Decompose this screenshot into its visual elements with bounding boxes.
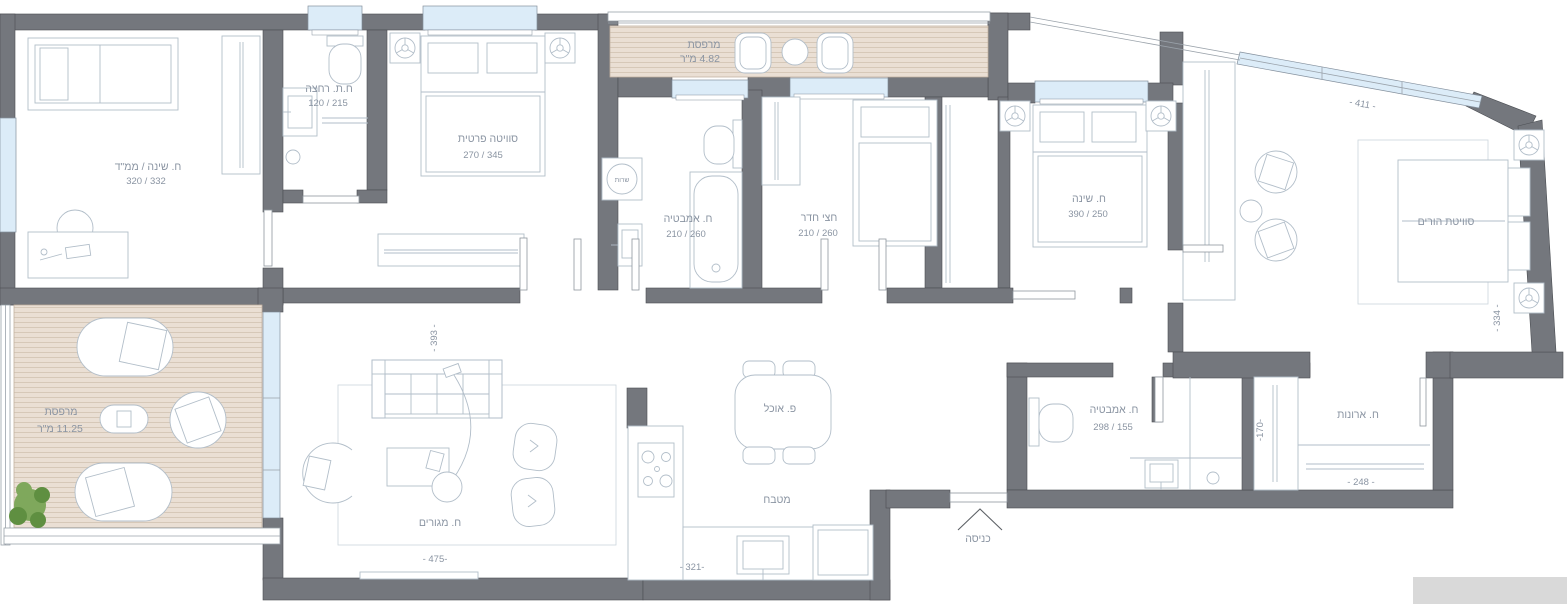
adjacent-structure [1413,577,1567,604]
balcony-table [782,39,808,65]
dresser [378,234,524,266]
room-label: ח. ארונות [1337,409,1379,421]
room-bathroom-bottom: ח. אמבטיה 298 / 155 [1029,377,1242,490]
room-bedroom: ח. שינה 390 / 250 [1000,101,1176,299]
shaft-label: שרות [615,177,630,184]
door-leaf [1155,377,1163,422]
door-leaf [1420,378,1426,426]
glass-railing [608,12,990,21]
dim-depth: -170- [1255,419,1266,441]
door-leaf [264,210,272,266]
room-label: ח.ת. רחצה [305,83,353,95]
room-area: 11.25 מ"ר [37,423,83,435]
room-dims: 210 / 260 [666,229,706,240]
lounge-sofa [75,463,172,521]
dim-width: - 248 - [1347,477,1374,488]
single-bed [28,38,178,110]
room-balcony-top: מרפסת 4.82 מ"ר [608,12,990,77]
dim-depth: - 334 - [1492,304,1503,331]
door-jamb [879,239,886,290]
room-half-room: חצי חדר 210 / 260 [762,97,937,290]
door-jamb [632,239,639,290]
room-label: סוויטה פרטית [458,133,518,145]
room-dims: 390 / 250 [1068,209,1108,220]
toilet-icon [704,120,742,168]
room-dims: 120 / 215 [308,98,348,109]
service-shaft: שרות [602,158,642,200]
service-duct [946,105,950,283]
coffee-table [100,405,148,433]
entrance: כניסה [950,493,1007,545]
room-guest-bath: ח.ת. רחצה 120 / 215 [283,36,368,203]
door-jamb [821,239,828,290]
threshold [950,493,1007,502]
room-private-suite: סוויטה פרטית 270 / 345 [378,33,575,290]
sink-vanity [1145,460,1178,490]
nightstand-speaker-icon [390,33,420,63]
parapet-line [1030,17,1240,55]
sink [737,536,789,574]
room-area: 4.82 מ"ר [680,53,720,65]
floor-drain [1207,472,1219,484]
door-jamb [574,239,581,290]
room-living: ח. מגורים - 475- - 393 - [303,324,616,579]
chair [783,447,815,464]
room-label: ח. אמבטיה [664,213,713,225]
toilet-icon [1029,398,1073,446]
nightstand-speaker-icon [1146,101,1176,131]
room-mamad: ח. שינה / ממ"ד 320 / 332 [28,36,260,278]
closet-bottom [1298,445,1430,469]
window-mamad [0,118,16,232]
room-closet: ח. ארונות -170- - 248 - [1254,377,1430,490]
room-label: ח. שינה [1072,193,1106,205]
door-leaf [1013,291,1075,299]
floor-drain [286,150,300,164]
wardrobe [1183,62,1235,300]
room-label: מרפסת [45,406,78,418]
dim-depth: - 393 - [429,324,440,351]
room-label: סוויטת הורים [1418,216,1475,228]
balcony-chair [735,33,771,73]
nightstand-speaker-icon [1514,283,1544,313]
room-dims: 210 / 260 [798,228,838,239]
sink-vanity [283,88,317,136]
side-table [1240,200,1262,222]
room-dims: 298 / 155 [1093,422,1133,433]
pouf [511,421,559,472]
nightstand-speaker-icon [1514,130,1544,160]
nightstand-speaker-icon [1000,101,1030,131]
chair [743,447,775,464]
room-label: ח. מגורים [419,517,461,529]
tall-unit [813,525,873,580]
floor-plan-drawing: מרפסת 4.82 מ"ר ח. שינה / ממ"ד 320 / 332 [0,0,1567,604]
room-label: ח. אמבטיה [1090,404,1139,416]
room-label: מרפסת [688,39,721,51]
window-guest-bath [308,6,362,30]
room-label: ח. שינה / ממ"ד [115,161,182,173]
balcony-chair [817,33,853,73]
room-dims: 320 / 332 [126,176,166,187]
toilet-icon [327,36,363,84]
room-dims: 270 / 345 [463,150,503,161]
sofa [372,360,502,418]
window-suite [423,6,537,30]
closet [762,97,800,185]
dim-window: - 411 - [1348,97,1376,113]
dim-width: - 321- [680,562,705,573]
entrance-label: כניסה [965,533,991,545]
tv-console [360,572,478,579]
door-leaf [1183,245,1223,252]
pouf [510,476,557,528]
door-leaf [303,196,359,203]
nightstand-speaker-icon [545,33,575,63]
armchair [1255,151,1297,193]
single-bed [853,100,937,246]
dim-width: - 475- [423,554,448,565]
desk-chair [28,210,128,278]
floor-plan-page: מרפסת 4.82 מ"ר ח. שינה / ממ"ד 320 / 332 [0,0,1567,604]
lounge-sofa [77,318,173,376]
area-dining: פ. אוכל [735,361,831,464]
door-leaf [520,238,527,290]
area-label: מטבח [763,494,790,506]
armchair [303,443,352,503]
lounge-chair [170,392,226,448]
entrance-arrow-icon [958,509,1002,530]
counter-left [628,426,683,580]
room-balcony-main: מרפסת 11.25 מ"ר [1,305,280,545]
wardrobe [222,36,260,174]
double-bed [1033,105,1147,247]
area-label: פ. אוכל [764,403,796,415]
glass-door [263,312,280,518]
armchair [1255,219,1297,261]
room-label: חצי חדר [801,212,838,224]
